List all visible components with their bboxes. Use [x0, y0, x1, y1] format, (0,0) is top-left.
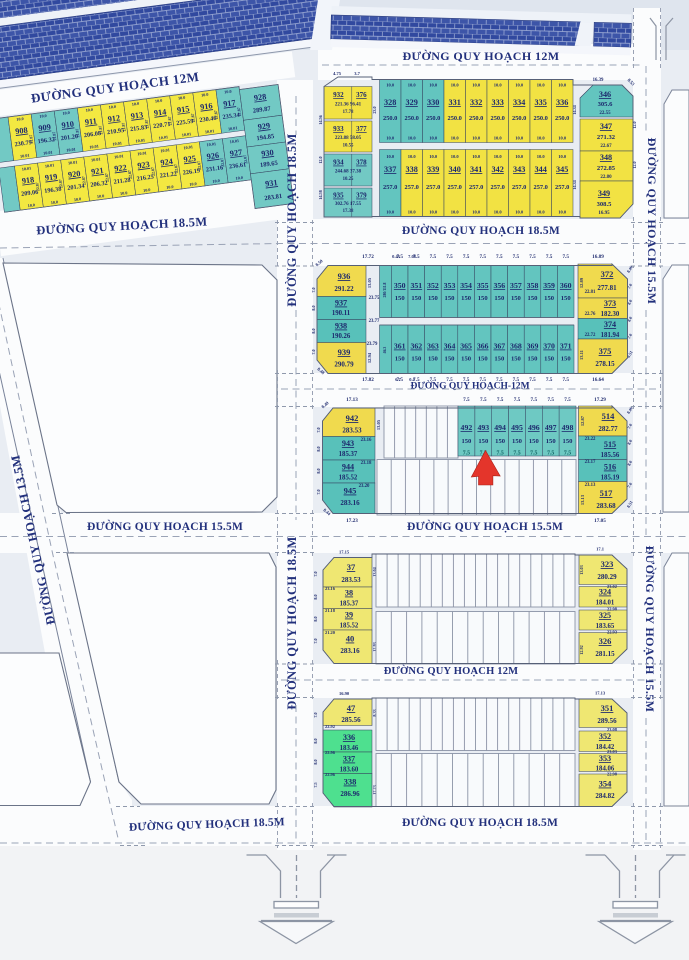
- svg-text:23.03: 23.03: [607, 749, 618, 754]
- svg-text:150: 150: [544, 356, 555, 363]
- svg-text:22.98: 22.98: [607, 607, 618, 612]
- svg-text:257.0: 257.0: [448, 184, 462, 191]
- svg-text:150: 150: [494, 356, 505, 363]
- svg-text:ĐƯỜNG QUY HOẠCH 18.5M: ĐƯỜNG QUY HOẠCH 18.5M: [285, 536, 299, 709]
- svg-text:150: 150: [528, 356, 539, 363]
- svg-text:21.18: 21.18: [325, 608, 336, 613]
- svg-text:13.03: 13.03: [579, 565, 584, 574]
- svg-text:336: 336: [556, 98, 568, 107]
- svg-text:7.5: 7.5: [396, 254, 403, 260]
- svg-text:335: 335: [535, 98, 547, 107]
- svg-text:338: 338: [406, 165, 418, 174]
- svg-text:350: 350: [394, 281, 406, 290]
- svg-text:926: 926: [206, 151, 220, 162]
- svg-text:ĐƯỜNG QUY HOẠCH 15.5M: ĐƯỜNG QUY HOẠCH 15.5M: [87, 519, 243, 533]
- svg-text:150: 150: [428, 295, 439, 302]
- svg-text:914: 914: [153, 107, 167, 118]
- svg-text:338: 338: [344, 777, 357, 787]
- svg-text:7.5: 7.5: [480, 397, 487, 403]
- svg-text:23.17: 23.17: [585, 460, 596, 465]
- svg-text:150: 150: [512, 438, 523, 445]
- svg-text:17.82: 17.82: [362, 377, 374, 383]
- svg-text:ĐƯỜNG QUY HOẠCH 18.5M: ĐƯỜNG QUY HOẠCH 18.5M: [402, 815, 558, 829]
- svg-text:16.89: 16.89: [592, 254, 604, 260]
- svg-text:10.55: 10.55: [343, 143, 354, 148]
- svg-text:290.79: 290.79: [334, 361, 354, 369]
- svg-text:150: 150: [461, 356, 472, 363]
- svg-text:280/111.8: 280/111.8: [383, 282, 387, 297]
- svg-text:289.56: 289.56: [597, 717, 617, 725]
- svg-text:ĐƯỜNG QUY HOẠCH 15.5M: ĐƯỜNG QUY HOẠCH 15.5M: [643, 546, 657, 713]
- svg-text:933: 933: [333, 125, 344, 133]
- svg-text:10.0: 10.0: [515, 210, 524, 215]
- svg-text:278.15: 278.15: [595, 360, 615, 368]
- svg-text:7.5: 7.5: [529, 377, 536, 383]
- svg-text:284.82: 284.82: [595, 792, 615, 800]
- svg-text:183.60: 183.60: [340, 767, 359, 774]
- svg-text:13.11: 13.11: [579, 349, 584, 360]
- svg-text:7.5: 7.5: [530, 451, 537, 457]
- svg-text:10.0: 10.0: [472, 83, 481, 88]
- svg-text:10.0: 10.0: [74, 196, 82, 202]
- svg-text:911: 911: [84, 116, 97, 126]
- svg-text:150: 150: [445, 295, 456, 302]
- svg-text:328: 328: [384, 98, 396, 107]
- svg-text:10.0: 10.0: [408, 136, 417, 141]
- svg-text:308.5: 308.5: [597, 201, 613, 208]
- svg-text:3.7: 3.7: [354, 71, 360, 76]
- svg-text:7.5: 7.5: [529, 254, 536, 260]
- svg-text:367: 367: [493, 342, 505, 351]
- svg-text:8.0: 8.0: [316, 446, 321, 451]
- svg-text:347: 347: [600, 122, 612, 131]
- svg-text:7.5: 7.5: [496, 451, 503, 457]
- svg-text:221.36 96.41: 221.36 96.41: [335, 102, 362, 107]
- svg-text:330: 330: [427, 98, 439, 107]
- svg-text:7.5: 7.5: [547, 397, 554, 403]
- svg-text:17.78: 17.78: [343, 110, 354, 115]
- svg-text:351: 351: [410, 281, 422, 290]
- svg-text:337: 337: [384, 165, 396, 174]
- svg-text:909: 909: [38, 123, 52, 134]
- svg-text:7.5: 7.5: [396, 377, 403, 383]
- svg-text:912: 912: [107, 113, 121, 124]
- svg-text:944: 944: [342, 463, 354, 472]
- svg-text:10.0: 10.0: [537, 154, 546, 159]
- svg-text:272.85: 272.85: [597, 165, 616, 172]
- svg-text:371: 371: [560, 342, 572, 351]
- svg-text:10.0: 10.0: [451, 136, 460, 141]
- svg-text:10.0: 10.0: [515, 154, 524, 159]
- svg-text:342: 342: [492, 165, 504, 174]
- svg-text:257.0: 257.0: [426, 184, 440, 191]
- svg-text:10.0: 10.0: [429, 136, 438, 141]
- svg-text:ĐƯỜNG QUY HOẠCH 15.5M: ĐƯỜNG QUY HOẠCH 15.5M: [407, 519, 563, 533]
- svg-text:932: 932: [333, 91, 344, 99]
- svg-text:493: 493: [477, 423, 489, 432]
- svg-text:10.0: 10.0: [178, 95, 186, 101]
- svg-text:150: 150: [428, 356, 439, 363]
- svg-text:7.5: 7.5: [513, 254, 520, 260]
- svg-text:10.0: 10.0: [515, 136, 524, 141]
- svg-text:10.0: 10.0: [50, 199, 58, 205]
- svg-text:23.79: 23.79: [367, 342, 378, 347]
- svg-text:184.01: 184.01: [596, 600, 615, 607]
- svg-text:283.53: 283.53: [341, 576, 361, 584]
- svg-text:7.5: 7.5: [497, 397, 504, 403]
- svg-text:223.88 58.05: 223.88 58.05: [335, 136, 362, 141]
- svg-text:7.5: 7.5: [463, 397, 470, 403]
- svg-text:10.0: 10.0: [132, 101, 140, 107]
- svg-text:497: 497: [545, 423, 557, 432]
- svg-text:363: 363: [427, 342, 439, 351]
- svg-text:150: 150: [445, 356, 456, 363]
- svg-text:325: 325: [599, 611, 611, 620]
- svg-text:923: 923: [137, 160, 151, 171]
- svg-text:14.34: 14.34: [572, 104, 577, 114]
- svg-text:928: 928: [253, 92, 267, 103]
- svg-text:39: 39: [345, 611, 353, 620]
- svg-text:7.5: 7.5: [430, 254, 437, 260]
- svg-text:340: 340: [449, 165, 461, 174]
- svg-text:150: 150: [478, 438, 489, 445]
- svg-text:10.0: 10.0: [429, 83, 438, 88]
- svg-text:7.5: 7.5: [413, 254, 420, 260]
- svg-text:7.5: 7.5: [546, 377, 553, 383]
- svg-text:22.76: 22.76: [585, 312, 596, 317]
- svg-text:929: 929: [257, 121, 271, 132]
- svg-text:915: 915: [176, 104, 190, 115]
- svg-text:4.75: 4.75: [333, 71, 342, 76]
- svg-text:352: 352: [599, 732, 611, 741]
- svg-text:8.0: 8.0: [316, 468, 321, 473]
- svg-text:10.0: 10.0: [120, 190, 128, 196]
- svg-text:336: 336: [343, 733, 355, 742]
- svg-text:13.05: 13.05: [367, 277, 372, 288]
- svg-text:10.0: 10.0: [143, 187, 151, 193]
- svg-text:12.0: 12.0: [632, 161, 637, 168]
- svg-text:10.0: 10.0: [97, 193, 105, 199]
- svg-text:185.52: 185.52: [340, 623, 359, 630]
- svg-text:17.1: 17.1: [596, 547, 605, 552]
- svg-text:10.0: 10.0: [386, 210, 395, 215]
- svg-text:257.0: 257.0: [512, 184, 526, 191]
- svg-text:10.0: 10.0: [224, 89, 232, 95]
- svg-text:283.68: 283.68: [596, 502, 616, 510]
- svg-text:945: 945: [344, 486, 357, 496]
- svg-text:10.0: 10.0: [408, 210, 417, 215]
- svg-text:23.75: 23.75: [369, 296, 380, 301]
- svg-text:359: 359: [543, 281, 555, 290]
- svg-text:7.5: 7.5: [547, 451, 554, 457]
- svg-text:7.5: 7.5: [531, 397, 538, 403]
- svg-text:183.46: 183.46: [340, 745, 359, 752]
- svg-text:10.0: 10.0: [558, 210, 567, 215]
- svg-text:354: 354: [599, 779, 613, 789]
- svg-text:908: 908: [15, 126, 29, 137]
- svg-text:282.77: 282.77: [598, 425, 618, 433]
- svg-text:376: 376: [356, 91, 367, 99]
- svg-text:924: 924: [160, 157, 174, 168]
- svg-text:10.0: 10.0: [201, 92, 209, 98]
- svg-text:8.0: 8.0: [313, 738, 318, 743]
- svg-text:10.0: 10.0: [515, 83, 524, 88]
- svg-text:356: 356: [493, 281, 505, 290]
- svg-text:10.0: 10.0: [429, 154, 438, 159]
- svg-text:910: 910: [61, 119, 75, 130]
- svg-text:333: 333: [492, 98, 504, 107]
- svg-text:10.0: 10.0: [212, 178, 220, 184]
- svg-text:921: 921: [91, 166, 105, 177]
- svg-text:10.0: 10.0: [386, 83, 395, 88]
- svg-text:377: 377: [356, 125, 367, 133]
- svg-text:23.77: 23.77: [369, 319, 380, 324]
- svg-text:369: 369: [527, 342, 539, 351]
- svg-text:150: 150: [461, 295, 472, 302]
- svg-text:185.37: 185.37: [339, 451, 358, 458]
- svg-text:283.16: 283.16: [340, 647, 360, 655]
- svg-text:10.0: 10.0: [537, 83, 546, 88]
- svg-text:38: 38: [345, 589, 353, 598]
- svg-text:323: 323: [601, 559, 614, 569]
- svg-text:250.0: 250.0: [383, 115, 397, 122]
- svg-text:10.0: 10.0: [494, 154, 503, 159]
- svg-text:10.0: 10.0: [429, 210, 438, 215]
- svg-text:517: 517: [600, 488, 614, 498]
- svg-text:257.0: 257.0: [469, 184, 483, 191]
- svg-text:913: 913: [130, 110, 144, 121]
- svg-text:150: 150: [561, 295, 572, 302]
- svg-text:378: 378: [356, 159, 367, 167]
- svg-text:348: 348: [600, 153, 612, 162]
- svg-text:182.30: 182.30: [601, 311, 620, 318]
- svg-text:918: 918: [21, 175, 35, 186]
- svg-text:277.81: 277.81: [597, 284, 617, 292]
- svg-text:ĐƯỜNG QUY HOẠCH 12M: ĐƯỜNG QUY HOẠCH 12M: [384, 665, 519, 677]
- svg-text:936: 936: [338, 271, 351, 281]
- svg-text:22.55: 22.55: [599, 111, 611, 116]
- svg-text:17.13: 17.13: [346, 397, 358, 403]
- svg-text:280.29: 280.29: [597, 573, 617, 581]
- svg-text:14.56: 14.56: [318, 115, 323, 124]
- svg-text:150: 150: [461, 438, 472, 445]
- svg-text:150: 150: [528, 295, 539, 302]
- svg-text:16.39: 16.39: [593, 78, 604, 83]
- svg-text:492: 492: [461, 423, 473, 432]
- svg-text:942: 942: [346, 413, 359, 423]
- svg-text:250.0: 250.0: [448, 115, 462, 122]
- svg-text:10.0: 10.0: [189, 181, 197, 187]
- svg-text:244.68 37.38: 244.68 37.38: [335, 170, 362, 175]
- svg-text:181.94: 181.94: [601, 332, 620, 339]
- svg-text:357: 357: [510, 281, 522, 290]
- svg-text:150: 150: [395, 356, 406, 363]
- svg-text:7.5: 7.5: [446, 254, 453, 260]
- svg-text:10.0: 10.0: [472, 210, 481, 215]
- svg-text:17.72: 17.72: [362, 254, 374, 260]
- svg-text:10.0: 10.0: [472, 154, 481, 159]
- svg-text:150: 150: [546, 438, 557, 445]
- svg-text:10.0: 10.0: [155, 98, 163, 104]
- svg-text:185.56: 185.56: [601, 452, 620, 459]
- svg-text:23.0: 23.0: [372, 106, 377, 113]
- svg-text:329: 329: [406, 98, 418, 107]
- svg-text:150: 150: [511, 356, 522, 363]
- svg-text:10.0: 10.0: [386, 136, 395, 141]
- svg-text:21.20: 21.20: [325, 630, 336, 635]
- svg-text:ĐƯỜNG QUY HOẠCH-12M: ĐƯỜNG QUY HOẠCH-12M: [410, 380, 529, 392]
- svg-text:40: 40: [346, 634, 355, 644]
- svg-text:925: 925: [183, 154, 197, 165]
- svg-text:339: 339: [427, 165, 439, 174]
- svg-text:7.5: 7.5: [564, 397, 571, 403]
- svg-text:352: 352: [427, 281, 439, 290]
- svg-text:7.5: 7.5: [562, 254, 569, 260]
- svg-text:17.23: 17.23: [346, 518, 358, 524]
- svg-text:7.5: 7.5: [513, 451, 520, 457]
- svg-text:353: 353: [444, 281, 456, 290]
- svg-text:250.0: 250.0: [405, 115, 419, 122]
- svg-text:514: 514: [602, 411, 616, 421]
- svg-text:931: 931: [265, 178, 279, 189]
- svg-text:8.0: 8.0: [311, 305, 316, 310]
- svg-text:7.5: 7.5: [564, 451, 571, 457]
- svg-text:515: 515: [604, 440, 616, 449]
- svg-text:919: 919: [44, 172, 58, 183]
- svg-text:23.16: 23.16: [325, 586, 336, 591]
- svg-text:368: 368: [510, 342, 522, 351]
- svg-text:7.5: 7.5: [562, 377, 569, 383]
- svg-text:ĐƯỜNG QUY HOẠCH 18.5M: ĐƯỜNG QUY HOẠCH 18.5M: [402, 223, 560, 237]
- svg-text:12.0: 12.0: [318, 156, 323, 163]
- svg-text:7.5: 7.5: [496, 254, 503, 260]
- svg-text:250.0: 250.0: [469, 115, 483, 122]
- svg-text:257.0: 257.0: [383, 184, 397, 191]
- svg-text:190.26: 190.26: [332, 333, 351, 340]
- svg-text:150: 150: [563, 438, 574, 445]
- svg-text:7.5: 7.5: [546, 254, 553, 260]
- svg-text:10.0: 10.0: [39, 113, 47, 119]
- svg-text:326: 326: [599, 636, 612, 646]
- svg-text:10.0: 10.0: [166, 184, 174, 190]
- svg-text:361: 361: [394, 342, 406, 351]
- svg-text:351: 351: [601, 703, 614, 713]
- svg-text:17.05: 17.05: [594, 518, 606, 524]
- svg-text:150: 150: [544, 295, 555, 302]
- svg-text:10.0: 10.0: [558, 154, 567, 159]
- svg-text:8.0: 8.0: [313, 594, 318, 599]
- svg-text:185.19: 185.19: [601, 475, 620, 482]
- svg-text:373: 373: [604, 299, 616, 308]
- svg-text:16.95: 16.95: [598, 211, 610, 216]
- svg-text:360: 360: [560, 281, 572, 290]
- svg-text:17.15: 17.15: [339, 550, 350, 555]
- svg-text:10.0: 10.0: [451, 154, 460, 159]
- svg-text:12.0: 12.0: [632, 121, 637, 128]
- svg-text:939: 939: [338, 347, 351, 357]
- svg-text:349: 349: [598, 189, 610, 198]
- svg-text:12.92: 12.92: [579, 645, 584, 654]
- svg-text:10.0: 10.0: [451, 210, 460, 215]
- svg-text:ĐƯỜNG QUY HOẠCH 15.5M: ĐƯỜNG QUY HOẠCH 15.5M: [645, 138, 659, 305]
- svg-text:916: 916: [200, 101, 214, 112]
- svg-text:150: 150: [478, 295, 489, 302]
- svg-text:934: 934: [333, 159, 344, 167]
- svg-text:10.0: 10.0: [558, 83, 567, 88]
- svg-text:12.89: 12.89: [579, 277, 584, 288]
- svg-text:938: 938: [335, 322, 347, 331]
- svg-text:362: 362: [410, 342, 422, 351]
- svg-text:185.52: 185.52: [339, 475, 358, 482]
- svg-text:17.38: 17.38: [343, 209, 354, 214]
- svg-text:334: 334: [513, 98, 525, 107]
- svg-text:943: 943: [342, 439, 354, 448]
- svg-text:285.56: 285.56: [341, 716, 361, 724]
- svg-text:10.0: 10.0: [537, 210, 546, 215]
- svg-text:23.02: 23.02: [607, 584, 617, 589]
- svg-text:23.18: 23.18: [361, 461, 372, 466]
- svg-text:7.0: 7.0: [313, 638, 318, 643]
- svg-text:379: 379: [356, 192, 367, 200]
- svg-text:22.96: 22.96: [325, 772, 336, 777]
- svg-text:ĐƯỜNG QUY HOẠCH 12M: ĐƯỜNG QUY HOẠCH 12M: [402, 49, 559, 63]
- svg-text:22.81: 22.81: [585, 290, 596, 295]
- svg-text:496: 496: [528, 423, 540, 432]
- svg-text:16.90: 16.90: [339, 691, 350, 696]
- svg-text:346: 346: [599, 90, 611, 99]
- svg-text:344: 344: [535, 165, 547, 174]
- svg-text:16.64: 16.64: [592, 377, 604, 383]
- svg-text:23.08: 23.08: [607, 727, 618, 732]
- svg-text:46.3: 46.3: [383, 347, 387, 354]
- svg-text:250.0: 250.0: [491, 115, 505, 122]
- svg-text:17.29: 17.29: [594, 397, 606, 403]
- svg-text:12.87: 12.87: [580, 415, 585, 426]
- svg-text:14.58: 14.58: [318, 190, 323, 199]
- svg-text:22.92: 22.92: [325, 724, 335, 729]
- svg-text:343: 343: [513, 165, 525, 174]
- svg-text:286.96: 286.96: [340, 790, 360, 798]
- svg-text:355: 355: [477, 281, 489, 290]
- svg-text:190.11: 190.11: [332, 310, 351, 317]
- svg-text:150: 150: [511, 295, 522, 302]
- svg-text:302.76 17.55: 302.76 17.55: [335, 202, 362, 207]
- svg-text:22.93: 22.93: [607, 630, 618, 635]
- svg-text:271.32: 271.32: [597, 134, 616, 141]
- svg-text:331: 331: [449, 98, 461, 107]
- svg-text:185.37: 185.37: [340, 601, 359, 608]
- svg-text:10.0: 10.0: [16, 116, 24, 122]
- svg-text:10.0: 10.0: [472, 136, 481, 141]
- svg-text:7.0: 7.0: [313, 571, 318, 576]
- svg-text:250.0: 250.0: [512, 115, 526, 122]
- svg-text:10.0: 10.0: [235, 175, 243, 181]
- svg-text:358: 358: [527, 281, 539, 290]
- svg-text:374: 374: [604, 320, 616, 329]
- svg-text:305.6: 305.6: [598, 101, 614, 108]
- svg-text:10.0: 10.0: [62, 110, 70, 116]
- svg-text:22.72: 22.72: [585, 333, 596, 338]
- svg-text:281.15: 281.15: [595, 650, 615, 658]
- svg-text:250.0: 250.0: [426, 115, 440, 122]
- svg-text:8.0: 8.0: [313, 616, 318, 621]
- svg-text:332: 332: [470, 98, 482, 107]
- svg-text:7.0: 7.0: [313, 712, 318, 717]
- svg-text:366: 366: [477, 342, 489, 351]
- svg-text:150: 150: [529, 438, 540, 445]
- svg-text:930: 930: [261, 148, 275, 159]
- svg-text:364: 364: [444, 342, 456, 351]
